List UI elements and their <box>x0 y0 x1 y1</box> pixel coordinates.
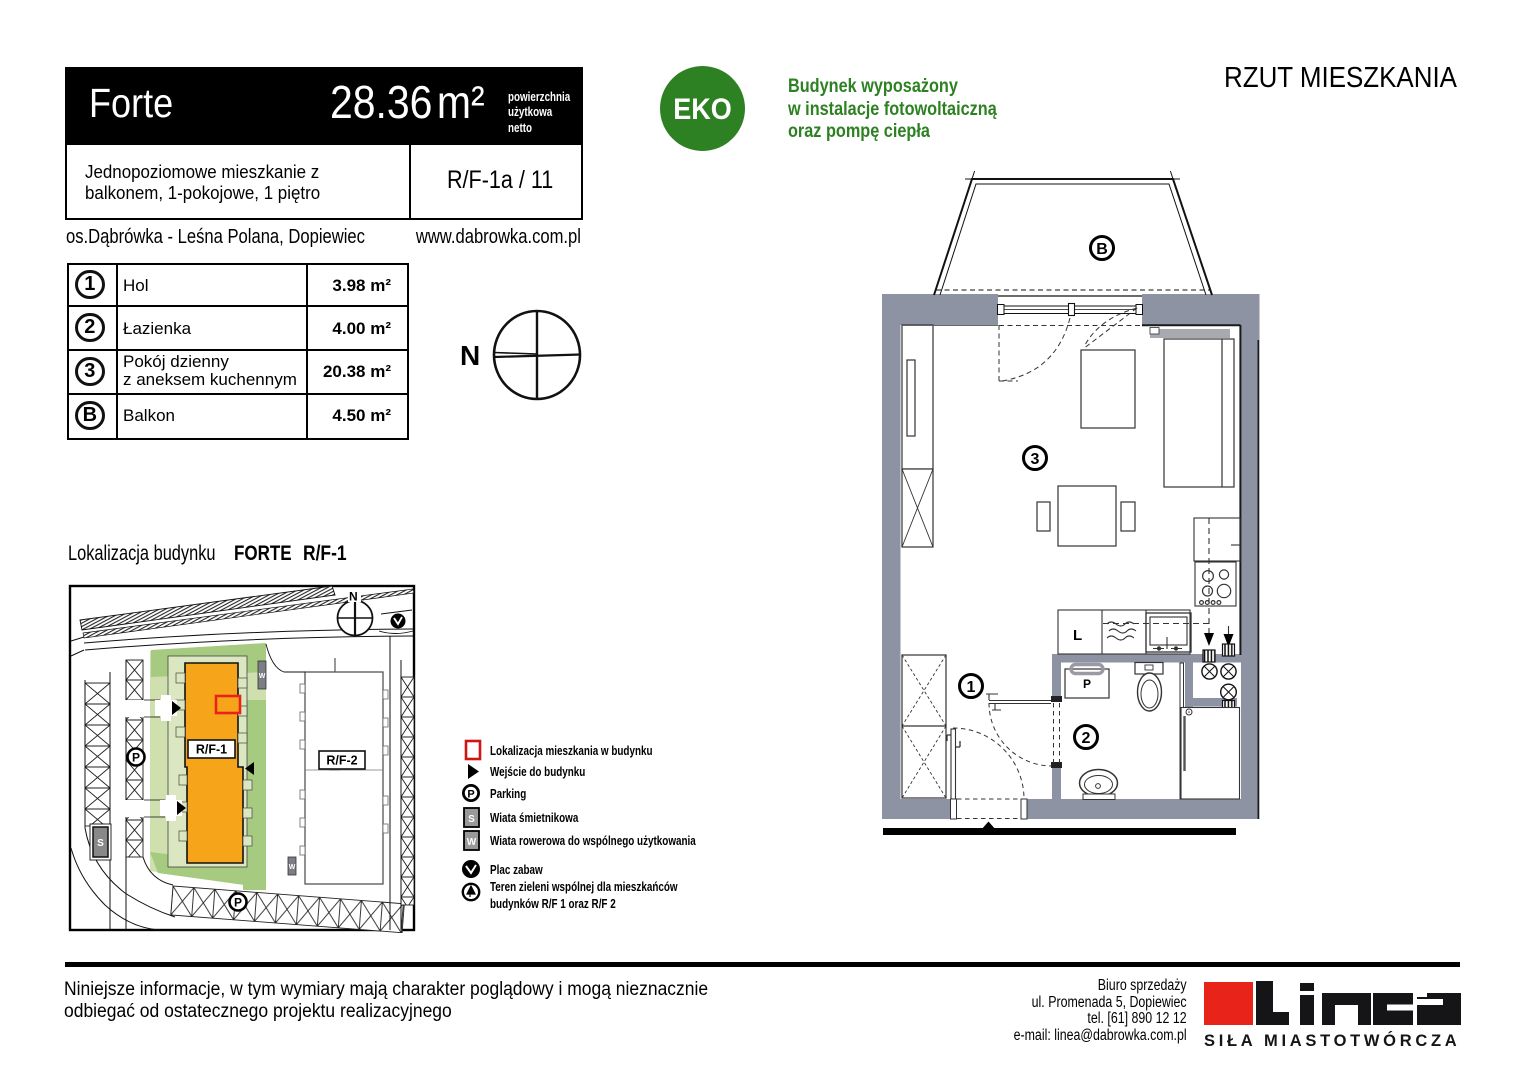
svg-text:P: P <box>132 751 140 765</box>
svg-text:P: P <box>1083 677 1091 691</box>
svg-text:W: W <box>467 837 477 848</box>
svg-text:W: W <box>289 864 296 871</box>
svg-text:W: W <box>259 673 266 680</box>
svg-text:N: N <box>349 590 358 604</box>
svg-text:S: S <box>468 814 475 825</box>
svg-text:L: L <box>1073 627 1082 644</box>
svg-text:P: P <box>467 789 474 801</box>
svg-text:3: 3 <box>1031 451 1040 468</box>
svg-text:2: 2 <box>1082 730 1091 747</box>
svg-text:1: 1 <box>967 679 976 696</box>
svg-text:N: N <box>460 340 480 371</box>
svg-text:R/F-1: R/F-1 <box>196 743 227 757</box>
svg-text:S: S <box>97 838 104 849</box>
svg-text:P: P <box>234 896 242 910</box>
svg-text:B: B <box>1096 241 1108 258</box>
svg-text:SIŁA MIASTOTWÓRCZA: SIŁA MIASTOTWÓRCZA <box>1204 1031 1460 1050</box>
svg-text:R/F-2: R/F-2 <box>326 754 357 768</box>
